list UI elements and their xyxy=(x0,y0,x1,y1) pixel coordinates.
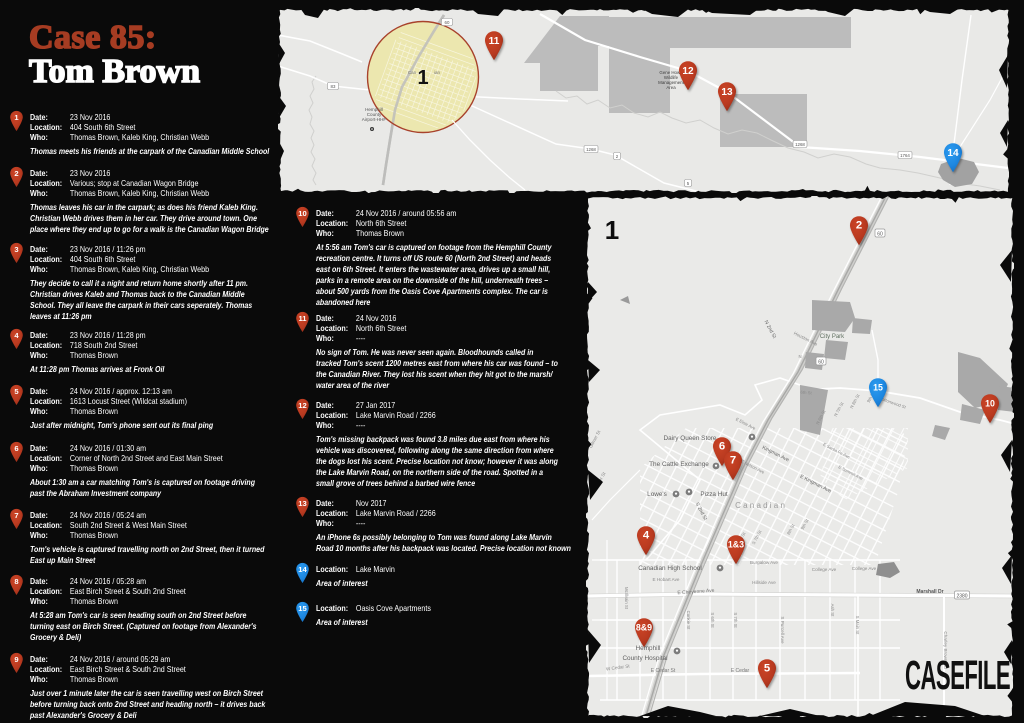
svg-text:14: 14 xyxy=(947,148,959,159)
svg-text:3: 3 xyxy=(14,245,18,254)
svg-text:7: 7 xyxy=(14,511,18,520)
svg-text:Hemphill: Hemphill xyxy=(636,645,661,652)
svg-text:60: 60 xyxy=(818,359,824,365)
svg-text:ian: ian xyxy=(434,70,441,75)
svg-text:15: 15 xyxy=(873,382,883,392)
svg-text:The Cattle Exchange: The Cattle Exchange xyxy=(649,461,709,468)
svg-text:Marshall Dr: Marshall Dr xyxy=(916,589,943,595)
svg-text:McIllvain St: McIllvain St xyxy=(624,587,629,610)
svg-text:City Park: City Park xyxy=(820,334,845,340)
svg-text:Conkie St: Conkie St xyxy=(686,611,691,630)
svg-text:College Ave: College Ave xyxy=(812,567,837,572)
svg-text:Area: Area xyxy=(666,85,676,90)
svg-text:6th St: 6th St xyxy=(800,390,812,396)
svg-text:E Cedar: E Cedar xyxy=(731,668,750,674)
svg-text:83: 83 xyxy=(331,84,336,89)
svg-text:6: 6 xyxy=(14,444,18,453)
svg-text:S 6th St: S 6th St xyxy=(710,612,715,628)
svg-text:S Main St: S Main St xyxy=(855,616,860,635)
svg-text:Dairy Queen Store: Dairy Queen Store xyxy=(664,435,717,442)
svg-text:E Cedar St: E Cedar St xyxy=(651,668,676,674)
svg-text:10: 10 xyxy=(985,398,995,408)
svg-text:County Hospital: County Hospital xyxy=(622,655,667,662)
svg-text:N: N xyxy=(798,354,801,359)
svg-text:Airport-HHF: Airport-HHF xyxy=(362,117,387,122)
svg-text:1268: 1268 xyxy=(795,142,805,147)
svg-text:CASEFILE: CASEFILE xyxy=(905,652,1010,698)
svg-text:1268: 1268 xyxy=(586,147,596,152)
svg-text:1764: 1764 xyxy=(900,153,910,158)
svg-text:2: 2 xyxy=(14,169,18,178)
svg-text:4: 4 xyxy=(643,529,650,541)
svg-text:C a n a d i a n: C a n a d i a n xyxy=(735,501,785,510)
svg-text:14: 14 xyxy=(298,565,307,574)
svg-text:Can: Can xyxy=(408,70,417,75)
svg-text:11: 11 xyxy=(298,314,307,323)
svg-text:8&9: 8&9 xyxy=(636,622,652,632)
svg-text:1: 1 xyxy=(605,215,619,245)
svg-text:15: 15 xyxy=(298,604,307,613)
svg-text:6: 6 xyxy=(719,440,725,452)
svg-text:Hillside Ave: Hillside Ave xyxy=(752,580,776,585)
svg-text:College Ave: College Ave xyxy=(852,566,877,571)
svg-text:1: 1 xyxy=(417,67,428,89)
svg-text:10: 10 xyxy=(298,209,306,218)
svg-text:Lowe's: Lowe's xyxy=(647,491,667,498)
svg-text:S Purcell Ave: S Purcell Ave xyxy=(780,616,785,644)
svg-text:1&3: 1&3 xyxy=(728,539,744,549)
svg-text:S 7th St: S 7th St xyxy=(733,612,738,628)
svg-text:13: 13 xyxy=(721,87,733,98)
svg-text:Pizza Hut: Pizza Hut xyxy=(700,491,728,498)
svg-text:Burgalow Ave: Burgalow Ave xyxy=(750,560,778,565)
svg-text:12: 12 xyxy=(682,66,694,77)
svg-text:8: 8 xyxy=(14,577,18,586)
svg-text:5: 5 xyxy=(764,662,770,674)
svg-text:7: 7 xyxy=(730,454,736,466)
svg-text:9: 9 xyxy=(14,655,18,664)
svg-text:Ash St: Ash St xyxy=(830,604,835,617)
svg-text:Canadian High School: Canadian High School xyxy=(638,565,702,572)
svg-text:60: 60 xyxy=(877,231,883,237)
svg-text:60: 60 xyxy=(445,20,450,25)
svg-text:12: 12 xyxy=(298,401,306,410)
svg-text:2: 2 xyxy=(856,219,862,231)
svg-text:13: 13 xyxy=(298,499,306,508)
svg-text:2380: 2380 xyxy=(956,593,967,599)
svg-text:11: 11 xyxy=(489,36,500,47)
svg-text:E Hobart Ave: E Hobart Ave xyxy=(653,577,680,582)
